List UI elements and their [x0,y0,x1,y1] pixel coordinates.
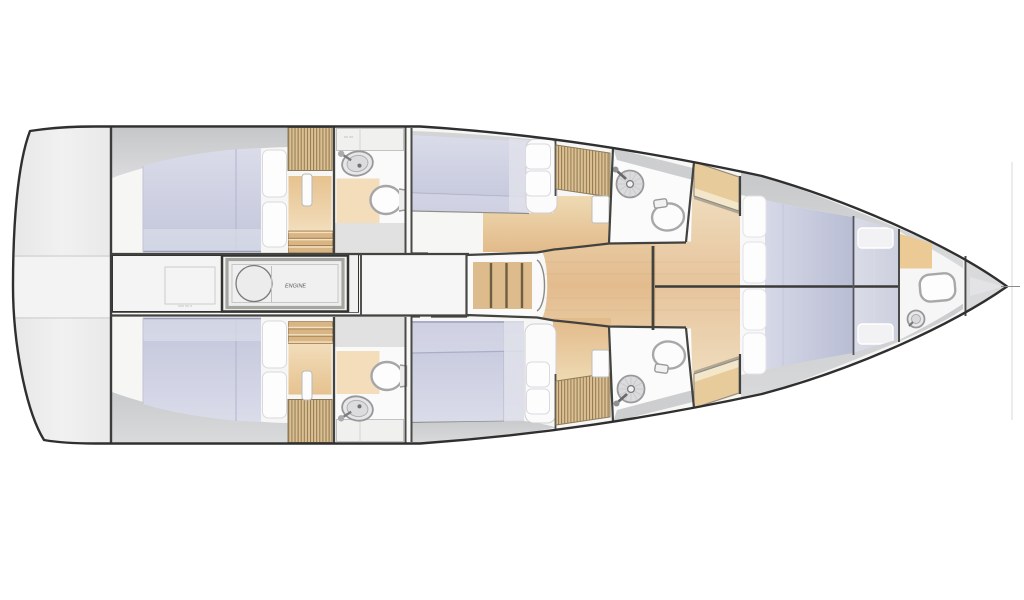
svg-text:xxx xx x: xxx xx x [178,303,192,308]
svg-text:ENGINE: ENGINE [285,284,306,290]
svg-text:xx xx: xx xx [344,134,353,139]
